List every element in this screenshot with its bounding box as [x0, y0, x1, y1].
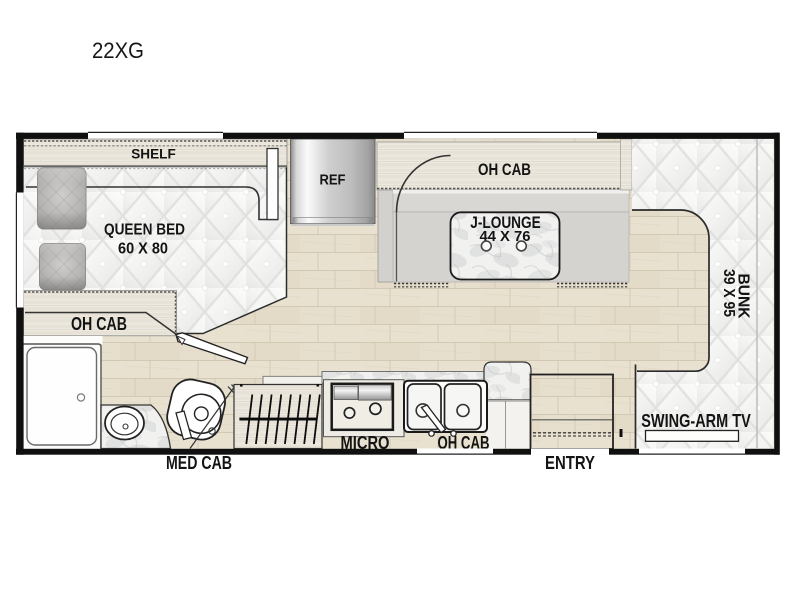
- svg-text:22XG: 22XG: [92, 38, 144, 63]
- svg-text:QUEEN BED: QUEEN BED: [104, 222, 185, 239]
- svg-text:SHELF: SHELF: [131, 147, 176, 162]
- svg-text:MED CAB: MED CAB: [166, 453, 232, 473]
- svg-text:OH CAB: OH CAB: [478, 160, 531, 179]
- svg-text:ENTRY: ENTRY: [545, 453, 595, 473]
- svg-text:REF: REF: [320, 173, 346, 189]
- svg-text:SWING-ARM TV: SWING-ARM TV: [641, 410, 751, 431]
- svg-text:OH CAB: OH CAB: [71, 314, 127, 334]
- svg-text:39 X 95: 39 X 95: [720, 269, 737, 317]
- svg-text:60 X 80: 60 X 80: [118, 241, 168, 258]
